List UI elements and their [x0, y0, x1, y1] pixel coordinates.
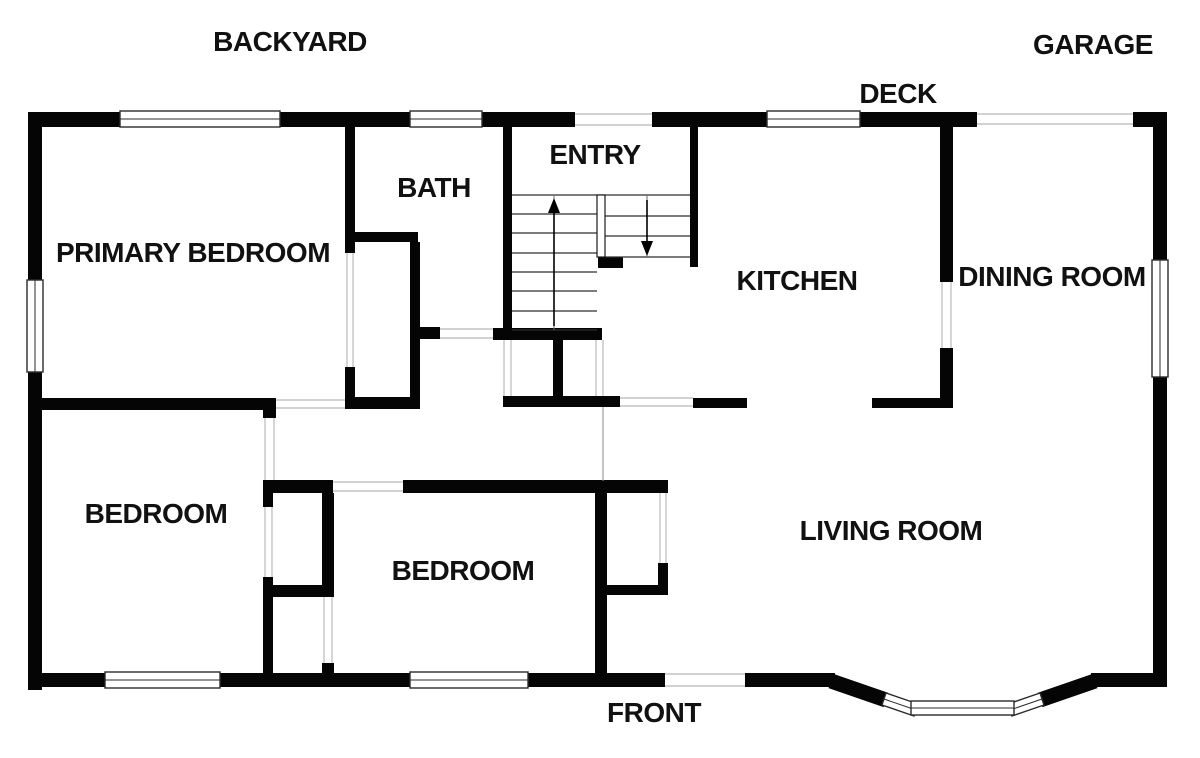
label-front: FRONT	[607, 697, 701, 729]
room-label-bath: BATH	[397, 172, 471, 204]
bay-window	[831, 681, 1095, 716]
room-label-bedroom-left: BEDROOM	[85, 498, 228, 530]
window-bath-top	[410, 111, 482, 127]
window-bedroom-middle-bottom	[410, 672, 528, 688]
window-dining-room-right	[1152, 260, 1168, 377]
window-primary-bedroom-left	[27, 280, 43, 372]
label-backyard: BACKYARD	[213, 26, 367, 58]
window-bedroom-left-bottom	[105, 672, 220, 688]
stairs-down-arrow	[641, 200, 653, 256]
floor-plan-drawing	[0, 0, 1200, 758]
room-label-living-room: LIVING ROOM	[800, 515, 983, 547]
window-kitchen-top	[767, 111, 860, 127]
label-deck: DECK	[859, 78, 936, 110]
floor-plan: BACKYARD GARAGE DECK FRONT ENTRY BATH PR…	[0, 0, 1200, 758]
room-label-bedroom-middle: BEDROOM	[392, 555, 535, 587]
stairs-up-arrow	[548, 198, 560, 326]
label-garage: GARAGE	[1033, 29, 1153, 61]
window-primary-bedroom-top	[120, 111, 280, 127]
room-label-entry: ENTRY	[549, 139, 640, 171]
room-label-kitchen: KITCHEN	[737, 265, 858, 297]
room-label-primary-bedroom: PRIMARY BEDROOM	[56, 237, 330, 269]
room-label-dining-room: DINING ROOM	[958, 261, 1145, 293]
